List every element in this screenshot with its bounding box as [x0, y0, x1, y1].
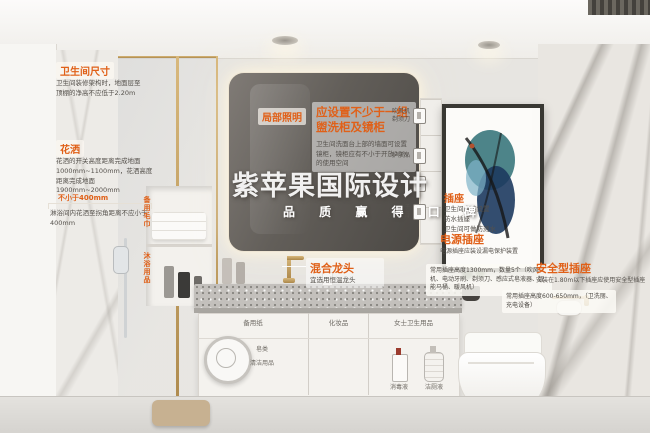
shelf-label-cleaning: 清洁用品 — [250, 358, 274, 367]
power-socket-body: 电源插座应装设漏电保护装置 — [440, 247, 550, 256]
shelf-note-label: 吹风机 剃须刀 — [376, 108, 410, 125]
socket-low-note: 常用插座高度600-650mm，（卫洗丽、充电设备） — [502, 290, 616, 313]
skincare-bottles-icon — [413, 148, 426, 164]
disinfectant-bottle-icon — [392, 354, 408, 382]
safe-socket-body: 安装在1.80m以下插座应使用安全型插座 — [536, 276, 648, 285]
local-light-title: 局部照明 — [258, 108, 306, 125]
bottle-pump — [396, 348, 401, 355]
wood-stool — [152, 400, 210, 426]
annotation-safe-socket: 安全型插座 安装在1.80m以下插座应使用安全型插座 — [536, 260, 648, 285]
power-socket-title: 电源插座 — [440, 231, 550, 247]
left-wall — [0, 44, 57, 433]
faucet-spout — [287, 256, 304, 260]
hand-shower-head — [113, 246, 129, 274]
spotlight-icon — [478, 41, 500, 49]
bottle-cap — [430, 346, 436, 353]
annotation-bathroom-size: 卫生间尺寸 卫生间装修架构时，地面层至顶棚的净高不应低于2.20m — [56, 60, 142, 99]
drawer-label-hygiene: 女士卫生用品 — [369, 317, 458, 327]
annotation-shower: 花洒 花洒的开关高度距离完成地面1000mm~1100mm，花洒高度距离完成地面… — [56, 138, 156, 196]
niche-label-toiletries: 沐浴用品 — [142, 252, 152, 284]
shelf-note-skincare: 护肤品 — [376, 148, 426, 164]
right-marble-wall — [538, 44, 650, 433]
leader-line — [282, 266, 306, 267]
shelf-note-label: 护肤品 — [376, 152, 410, 160]
drawer-label-cosmetics: 化妆品 — [309, 317, 368, 327]
bathroom-size-title: 卫生间尺寸 — [56, 62, 114, 79]
bathroom-design-infographic: 卫生间尺寸 卫生间装修架构时，地面层至顶棚的净高不应低于2.20m 花洒 花洒的… — [0, 0, 650, 433]
annotation-power-socket: 电源插座 电源插座应装设漏电保护装置 — [440, 231, 550, 256]
ceiling-vent-icon — [588, 0, 650, 15]
annotation-mixer-tap: 混合龙头 宜选用恒温龙头 — [306, 258, 384, 288]
annotation-local-light: 局部照明 — [258, 106, 306, 125]
shower-frame-top — [118, 56, 218, 58]
watermark-slogan: 品 质 赢 得 口 碑 — [283, 203, 486, 220]
shelf-label-soap: 皂类 — [256, 344, 268, 353]
shelf-note-hairdryer: 吹风机 剃须刀 — [376, 108, 426, 125]
shower-title: 花洒 — [56, 140, 84, 157]
faucet-base — [283, 278, 295, 283]
spotlight-icon — [272, 36, 298, 45]
bathroom-size-body: 卫生间装修架构时，地面层至顶棚的净高不应低于2.20m — [56, 79, 142, 99]
shower-body: 花洒的开关高度距离完成地面1000mm~1100mm，花洒高度距离完成地面190… — [56, 157, 156, 196]
niche-label-towels: 备用毛巾 — [142, 196, 152, 228]
soap-dispenser — [222, 258, 232, 284]
hairdryer-icon — [413, 108, 426, 124]
floor — [0, 396, 650, 433]
mixer-body: 宜选用恒温龙头 — [310, 276, 380, 286]
dimension-label: 不小于400mm — [58, 193, 108, 203]
watermark-brand: 紫苹果国际设计 — [232, 164, 442, 203]
safe-socket-title: 安全型插座 — [536, 260, 648, 276]
shelf-label-disinfectant: 消毒液 — [386, 382, 412, 391]
mixer-title: 混合龙头 — [310, 260, 380, 276]
drawer-label-paper: 备用纸 — [198, 317, 308, 327]
left-marble-wall — [56, 50, 118, 433]
cleaner-bottle-icon — [424, 352, 444, 382]
toiletry-bottle — [178, 272, 190, 298]
shelf-label-toilet-cleaner: 洁厕液 — [420, 382, 448, 391]
niche-shelf — [146, 244, 212, 247]
soap-dispenser — [236, 262, 245, 284]
toiletry-bottle — [164, 266, 174, 298]
scale-dial-center — [216, 348, 236, 368]
toilet-seat-line — [468, 362, 534, 364]
